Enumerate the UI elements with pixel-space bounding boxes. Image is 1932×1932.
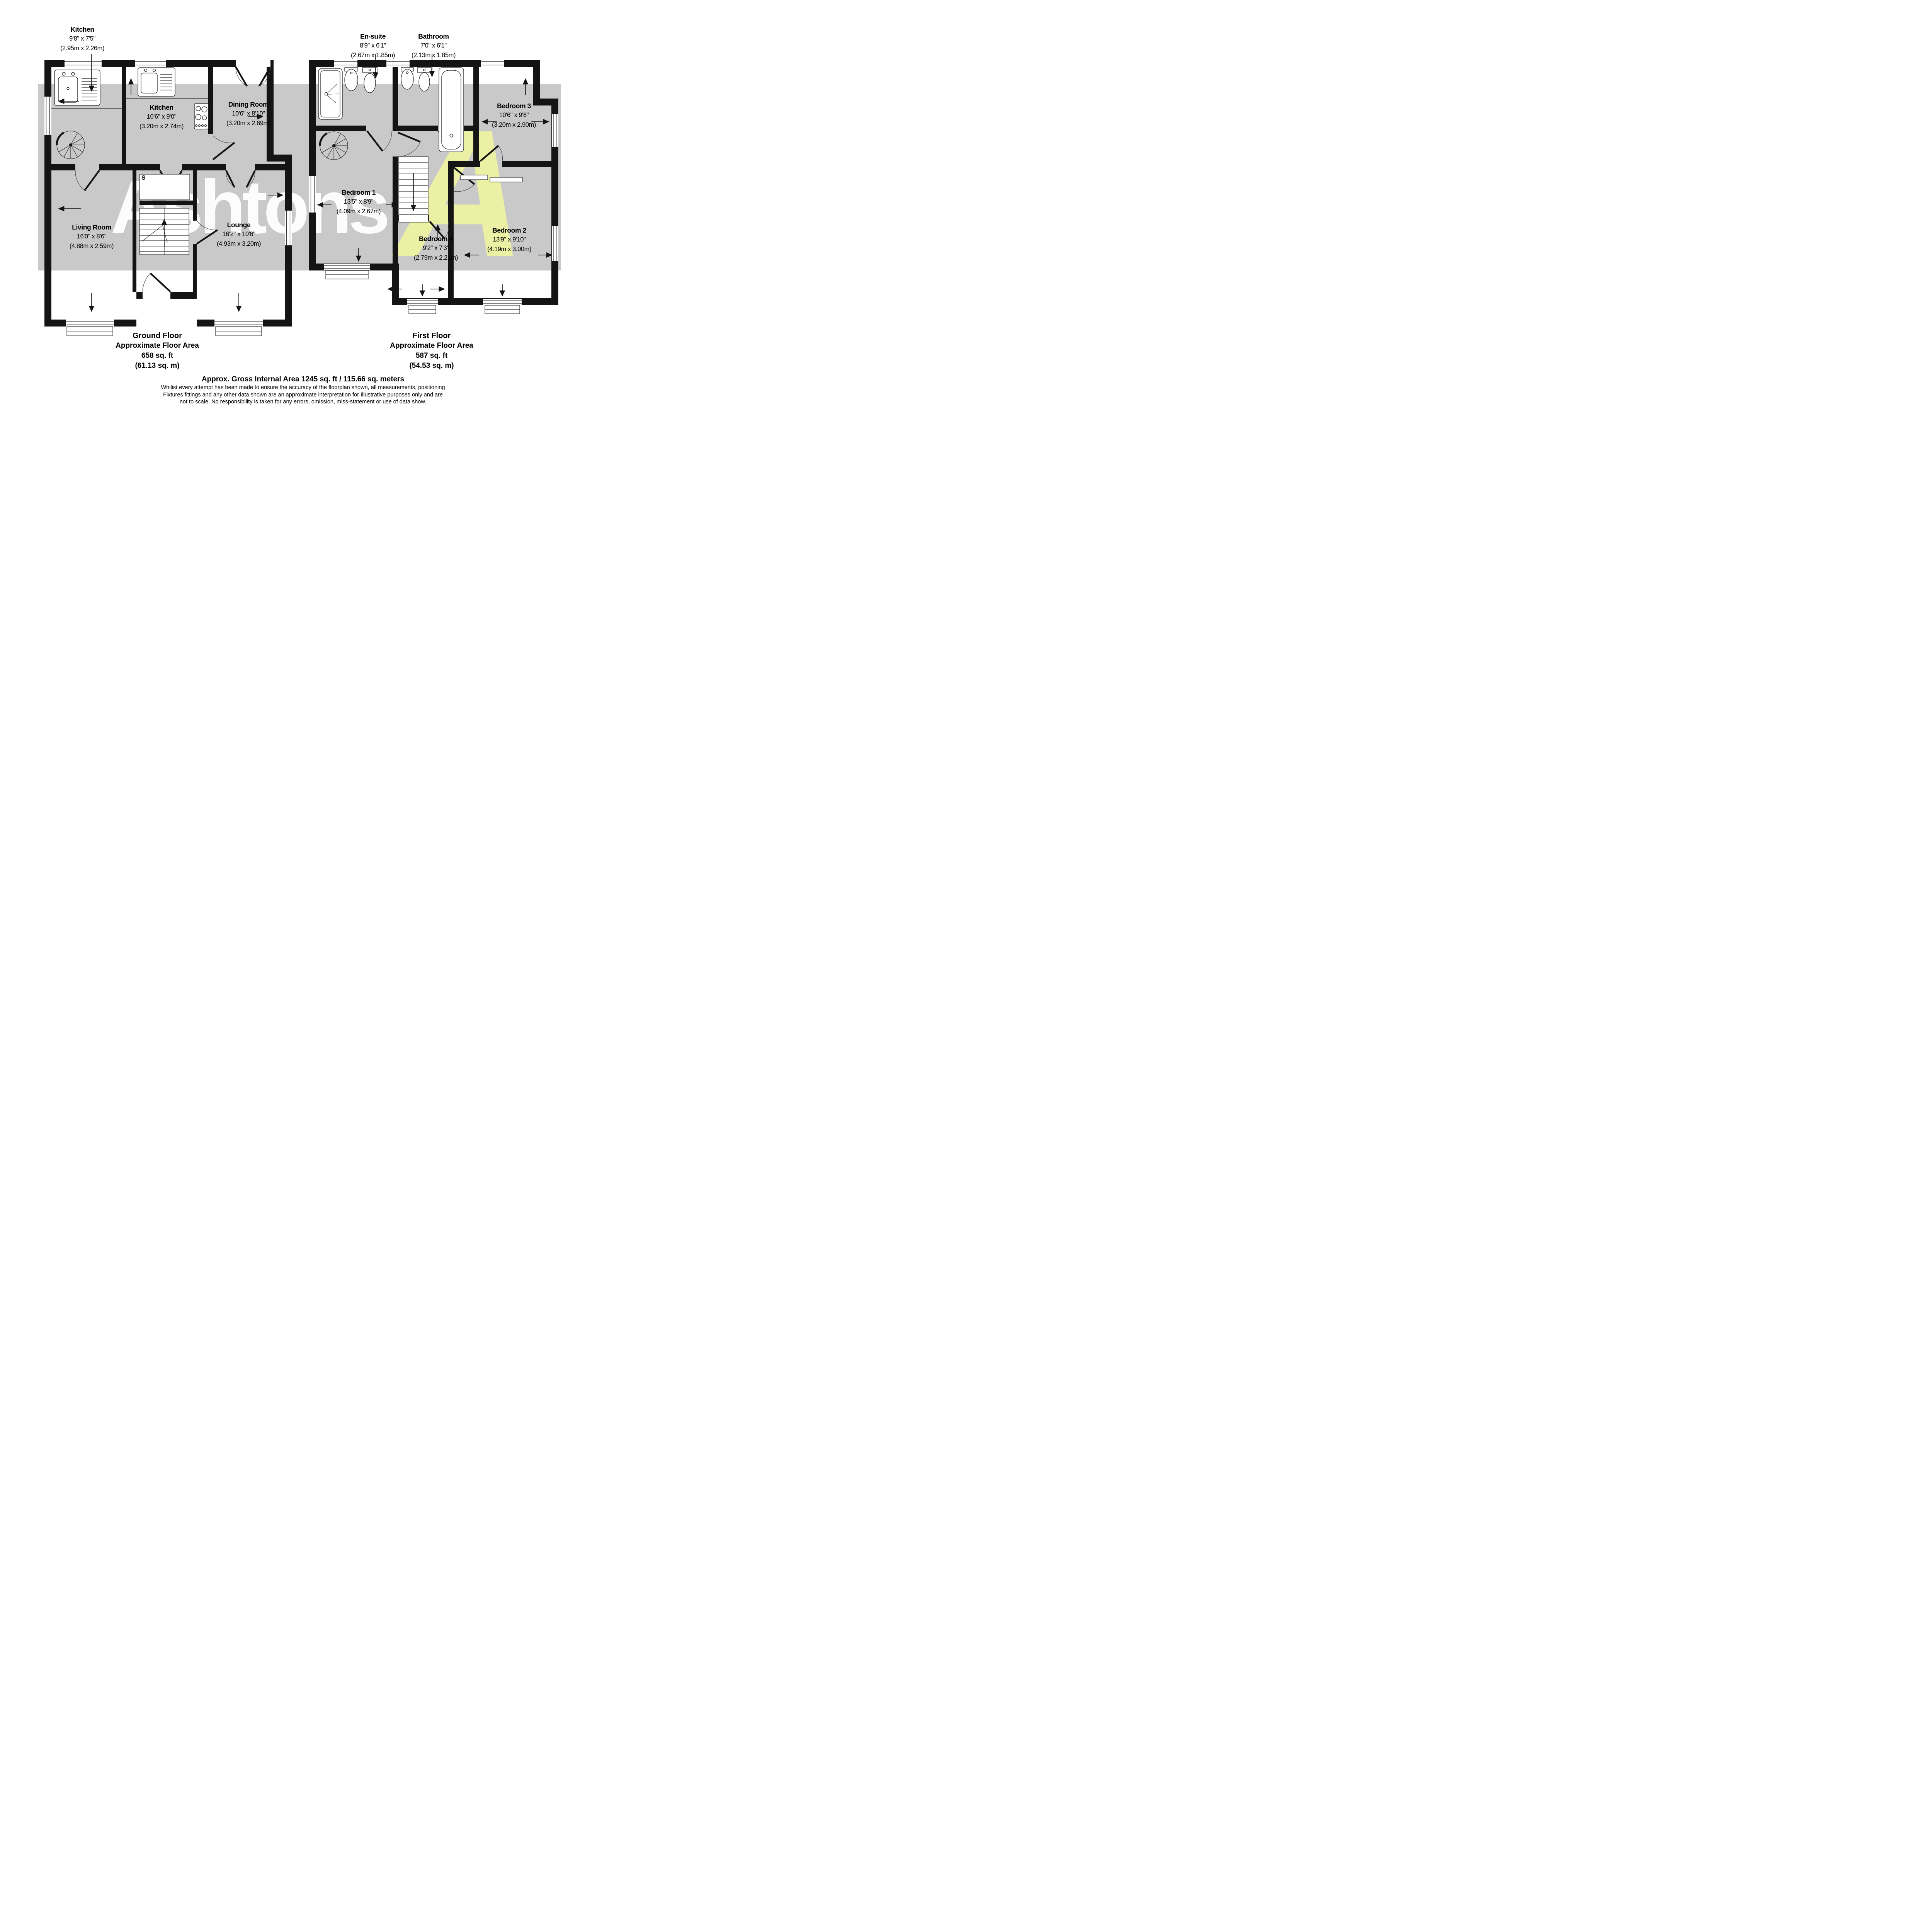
disclaimer-line-2: Fixtures fittings and any other data sho… — [0, 391, 606, 399]
room-label-bedroom-3: Bedroom 3 10'6" x 9'6" (3.20m x 2.90m) — [472, 101, 556, 130]
gross-area-text: Approx. Gross Internal Area 1245 sq. ft … — [0, 375, 606, 384]
room-label-bedroom-4: Bedroom 4 9'2" x 7'3" (2.79m x 2.21m) — [394, 234, 478, 263]
ensuite-toilet-icon — [362, 68, 377, 93]
room-label-living-room: Living Room 16'0" x 8'6" (4.88m x 2.59m) — [49, 223, 134, 251]
kitchen-sink-icon — [54, 70, 100, 105]
spiral-stair-icon — [57, 131, 85, 159]
ground-stairs-icon — [139, 174, 190, 255]
summary-block: Approx. Gross Internal Area 1245 sq. ft … — [0, 375, 606, 406]
first-spiral-stair-icon — [320, 132, 348, 160]
room-label-kitchen-2: Kitchen 10'6" x 9'0" (3.20m x 2.74m) — [121, 103, 202, 131]
room-label-bedroom-2: Bedroom 2 13'9" x 9'10" (4.19m x 3.00m) — [468, 226, 551, 254]
ground-floor-footer: Ground Floor Approximate Floor Area 658 … — [86, 331, 229, 371]
room-label-dining-room: Dining Room 10'6" x 8'10" (3.20m x 2.69m… — [207, 100, 290, 128]
shower-icon — [318, 68, 342, 119]
bath-icon — [439, 68, 464, 152]
floorplan-canvas: Ashtons A — [0, 0, 606, 428]
first-windows — [309, 60, 558, 305]
room-label-kitchen-1: Kitchen 9'8" x 7'5" (2.95m x 2.26m) — [42, 25, 123, 53]
room-label-bathroom: Bathroom 7'0" x 6'1" (2.13m x 1.85m) — [392, 32, 475, 60]
ensuite-basin-icon — [345, 68, 358, 91]
room-label-lounge: Lounge 16'2" x 10'6" (4.93m x 3.20m) — [197, 220, 281, 249]
disclaimer-line-1: Whilist every attempt has been made to e… — [0, 384, 606, 391]
disclaimer-line-3: not to scale. No responsibility is taken… — [0, 398, 606, 406]
bathroom-toilet-icon — [417, 68, 431, 91]
kitchen2-sink-icon — [138, 68, 175, 96]
french-doors-icon — [236, 67, 270, 86]
first-steps-icon — [326, 270, 520, 314]
room-label-bedroom-1: Bedroom 1 13'5" x 8'9" (4.09m x 2.67m) — [317, 188, 400, 216]
first-floor-plan — [309, 60, 558, 314]
first-floor-footer: First Floor Approximate Floor Area 587 s… — [360, 331, 503, 371]
bathroom-basin-icon — [401, 68, 413, 89]
first-doors — [367, 131, 502, 238]
storage-cupboard-label: S — [141, 175, 146, 182]
